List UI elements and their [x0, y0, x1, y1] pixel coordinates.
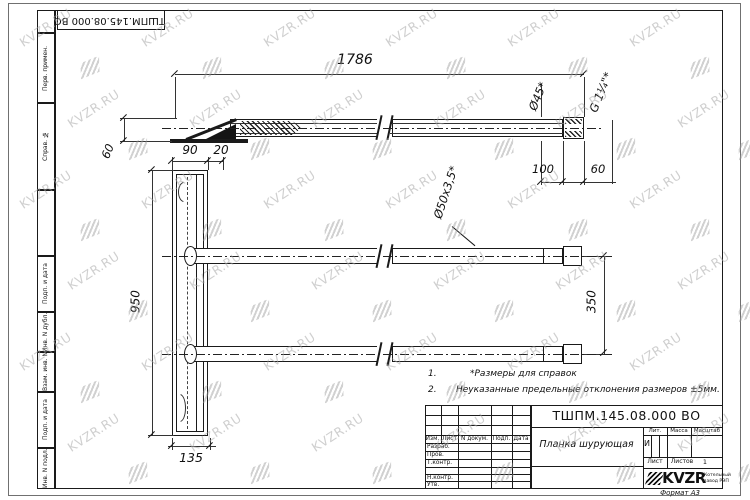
- dim-end-100: 100: [528, 163, 558, 176]
- margin-label-inv-podl: Инв. N подл.: [37, 448, 55, 489]
- dim-pipe-gap-350: 350: [585, 282, 598, 322]
- centerline: [162, 354, 612, 355]
- plate-inner: [176, 174, 204, 432]
- note-1-text: *Размеры для справок: [470, 370, 650, 380]
- margin-cell: [37, 10, 55, 33]
- margin-cell: [37, 190, 55, 256]
- centerline: [162, 256, 612, 257]
- tb-sheet-label: Лист: [644, 459, 666, 466]
- tb-col-podp: Подп.: [491, 436, 512, 442]
- dim-plate-height-950: 950: [129, 282, 142, 322]
- extension-line: [175, 77, 176, 119]
- margin-label-perv-primen: Перв. примен.: [37, 33, 55, 103]
- tb-lit-value: И: [643, 440, 651, 449]
- dimension-line: [604, 256, 605, 354]
- margin-label-podp-data-2: Подп. и дата: [37, 392, 55, 448]
- margin-label-sprav-no: Справ. №: [37, 103, 55, 190]
- kvzr-logo-text: KVZR: [662, 469, 706, 488]
- note-1-num: 1.: [428, 370, 444, 380]
- tb-line: [425, 415, 530, 416]
- tb-line: [659, 435, 660, 457]
- tb-line: [512, 405, 513, 489]
- extension-line: [612, 120, 613, 184]
- tb-row-tkontr: Т.контр.: [427, 460, 459, 466]
- tb-line: [643, 427, 644, 489]
- margin-label-podp-data-1: Подп. и дата: [37, 256, 55, 312]
- margin-label-vzam-inv: Взам. инв. N: [37, 352, 55, 392]
- plate-wall-line: [196, 174, 197, 432]
- drawing-sheet: ТШПМ.145.08.000 ВО Перв. примен. Справ. …: [0, 0, 750, 500]
- kvzr-logo-sub1: Котельный: [704, 473, 724, 478]
- dimension-line: [152, 170, 153, 435]
- tb-row-utv: Утв.: [427, 482, 457, 488]
- tb-line: [651, 435, 652, 457]
- tb-line: [425, 425, 530, 426]
- bracket-base: [170, 139, 248, 143]
- top-stamp-doc-number: ТШПМ.145.08.000 ВО: [57, 10, 165, 30]
- tb-sheets-value: 1: [698, 459, 712, 466]
- tb-col-ndokum: N докум.: [458, 436, 491, 442]
- dim-plate-20: 20: [206, 144, 236, 157]
- note-2-num: 2.: [428, 386, 444, 396]
- kvzr-logo-sub2: завод РЭП: [704, 479, 724, 484]
- extension-line: [120, 118, 177, 119]
- tb-row-razrab: Разраб.: [427, 444, 457, 450]
- dim-plate-bottom-135: 135: [168, 451, 214, 465]
- tb-col-data: Дата: [512, 436, 530, 442]
- plate-hidden-line: [187, 177, 188, 429]
- tb-col-list: Лист: [441, 436, 458, 442]
- tb-row-nkontr: Н.контр.: [427, 475, 459, 481]
- tb-doc-number: ТШПМ.145.08.000 ВО: [532, 408, 721, 424]
- tb-col-izm: Изм.: [424, 436, 441, 442]
- tb-row-prov: Пров.: [427, 452, 457, 458]
- dimension-line: [172, 161, 223, 162]
- tb-mass-header: Масса: [667, 428, 691, 434]
- dim-end-60: 60: [585, 163, 611, 176]
- dimension-line: [541, 182, 616, 183]
- margin-label-inv-dubl: Инв. N дубл.: [37, 312, 55, 352]
- tb-line: [425, 467, 530, 468]
- tb-sheets-label: Листов: [668, 459, 696, 466]
- extension-line: [120, 141, 172, 142]
- tb-lit-header: Лит.: [643, 428, 667, 434]
- coupling-hatch: [565, 119, 582, 124]
- dimension-line: [175, 74, 584, 75]
- centerline: [162, 128, 602, 129]
- tb-line: [643, 435, 723, 436]
- extension-line: [584, 77, 585, 117]
- tb-line: [530, 466, 643, 467]
- dim-plate-90: 90: [175, 144, 205, 157]
- format-label: Формат А3: [648, 490, 712, 498]
- tb-part-name: Планка шурующая: [532, 440, 641, 450]
- note-2-text: Неуказанные предельные отклонения размер…: [456, 386, 718, 396]
- tb-line: [491, 405, 492, 489]
- dim-length-overall: 1786: [325, 53, 385, 68]
- tb-scale-header: Масштаб: [691, 428, 723, 434]
- coupling-hatch: [565, 131, 582, 137]
